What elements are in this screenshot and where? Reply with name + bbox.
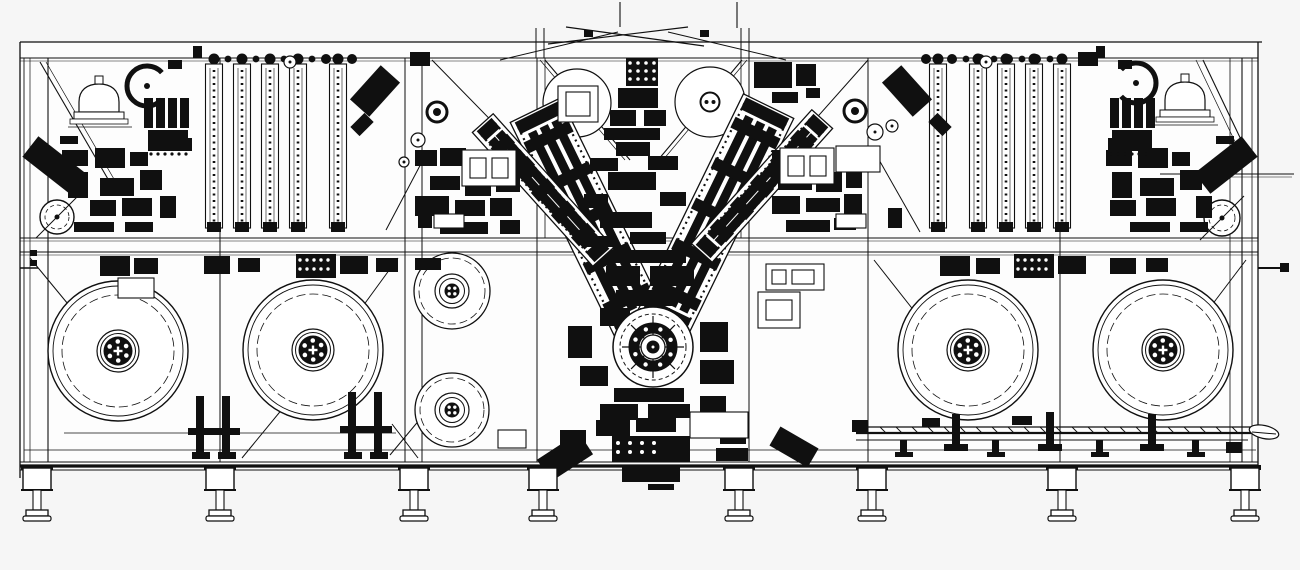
machine-line-drawing xyxy=(0,0,1300,570)
machine-drawing-page xyxy=(0,0,1300,570)
turret-layer xyxy=(613,307,693,387)
